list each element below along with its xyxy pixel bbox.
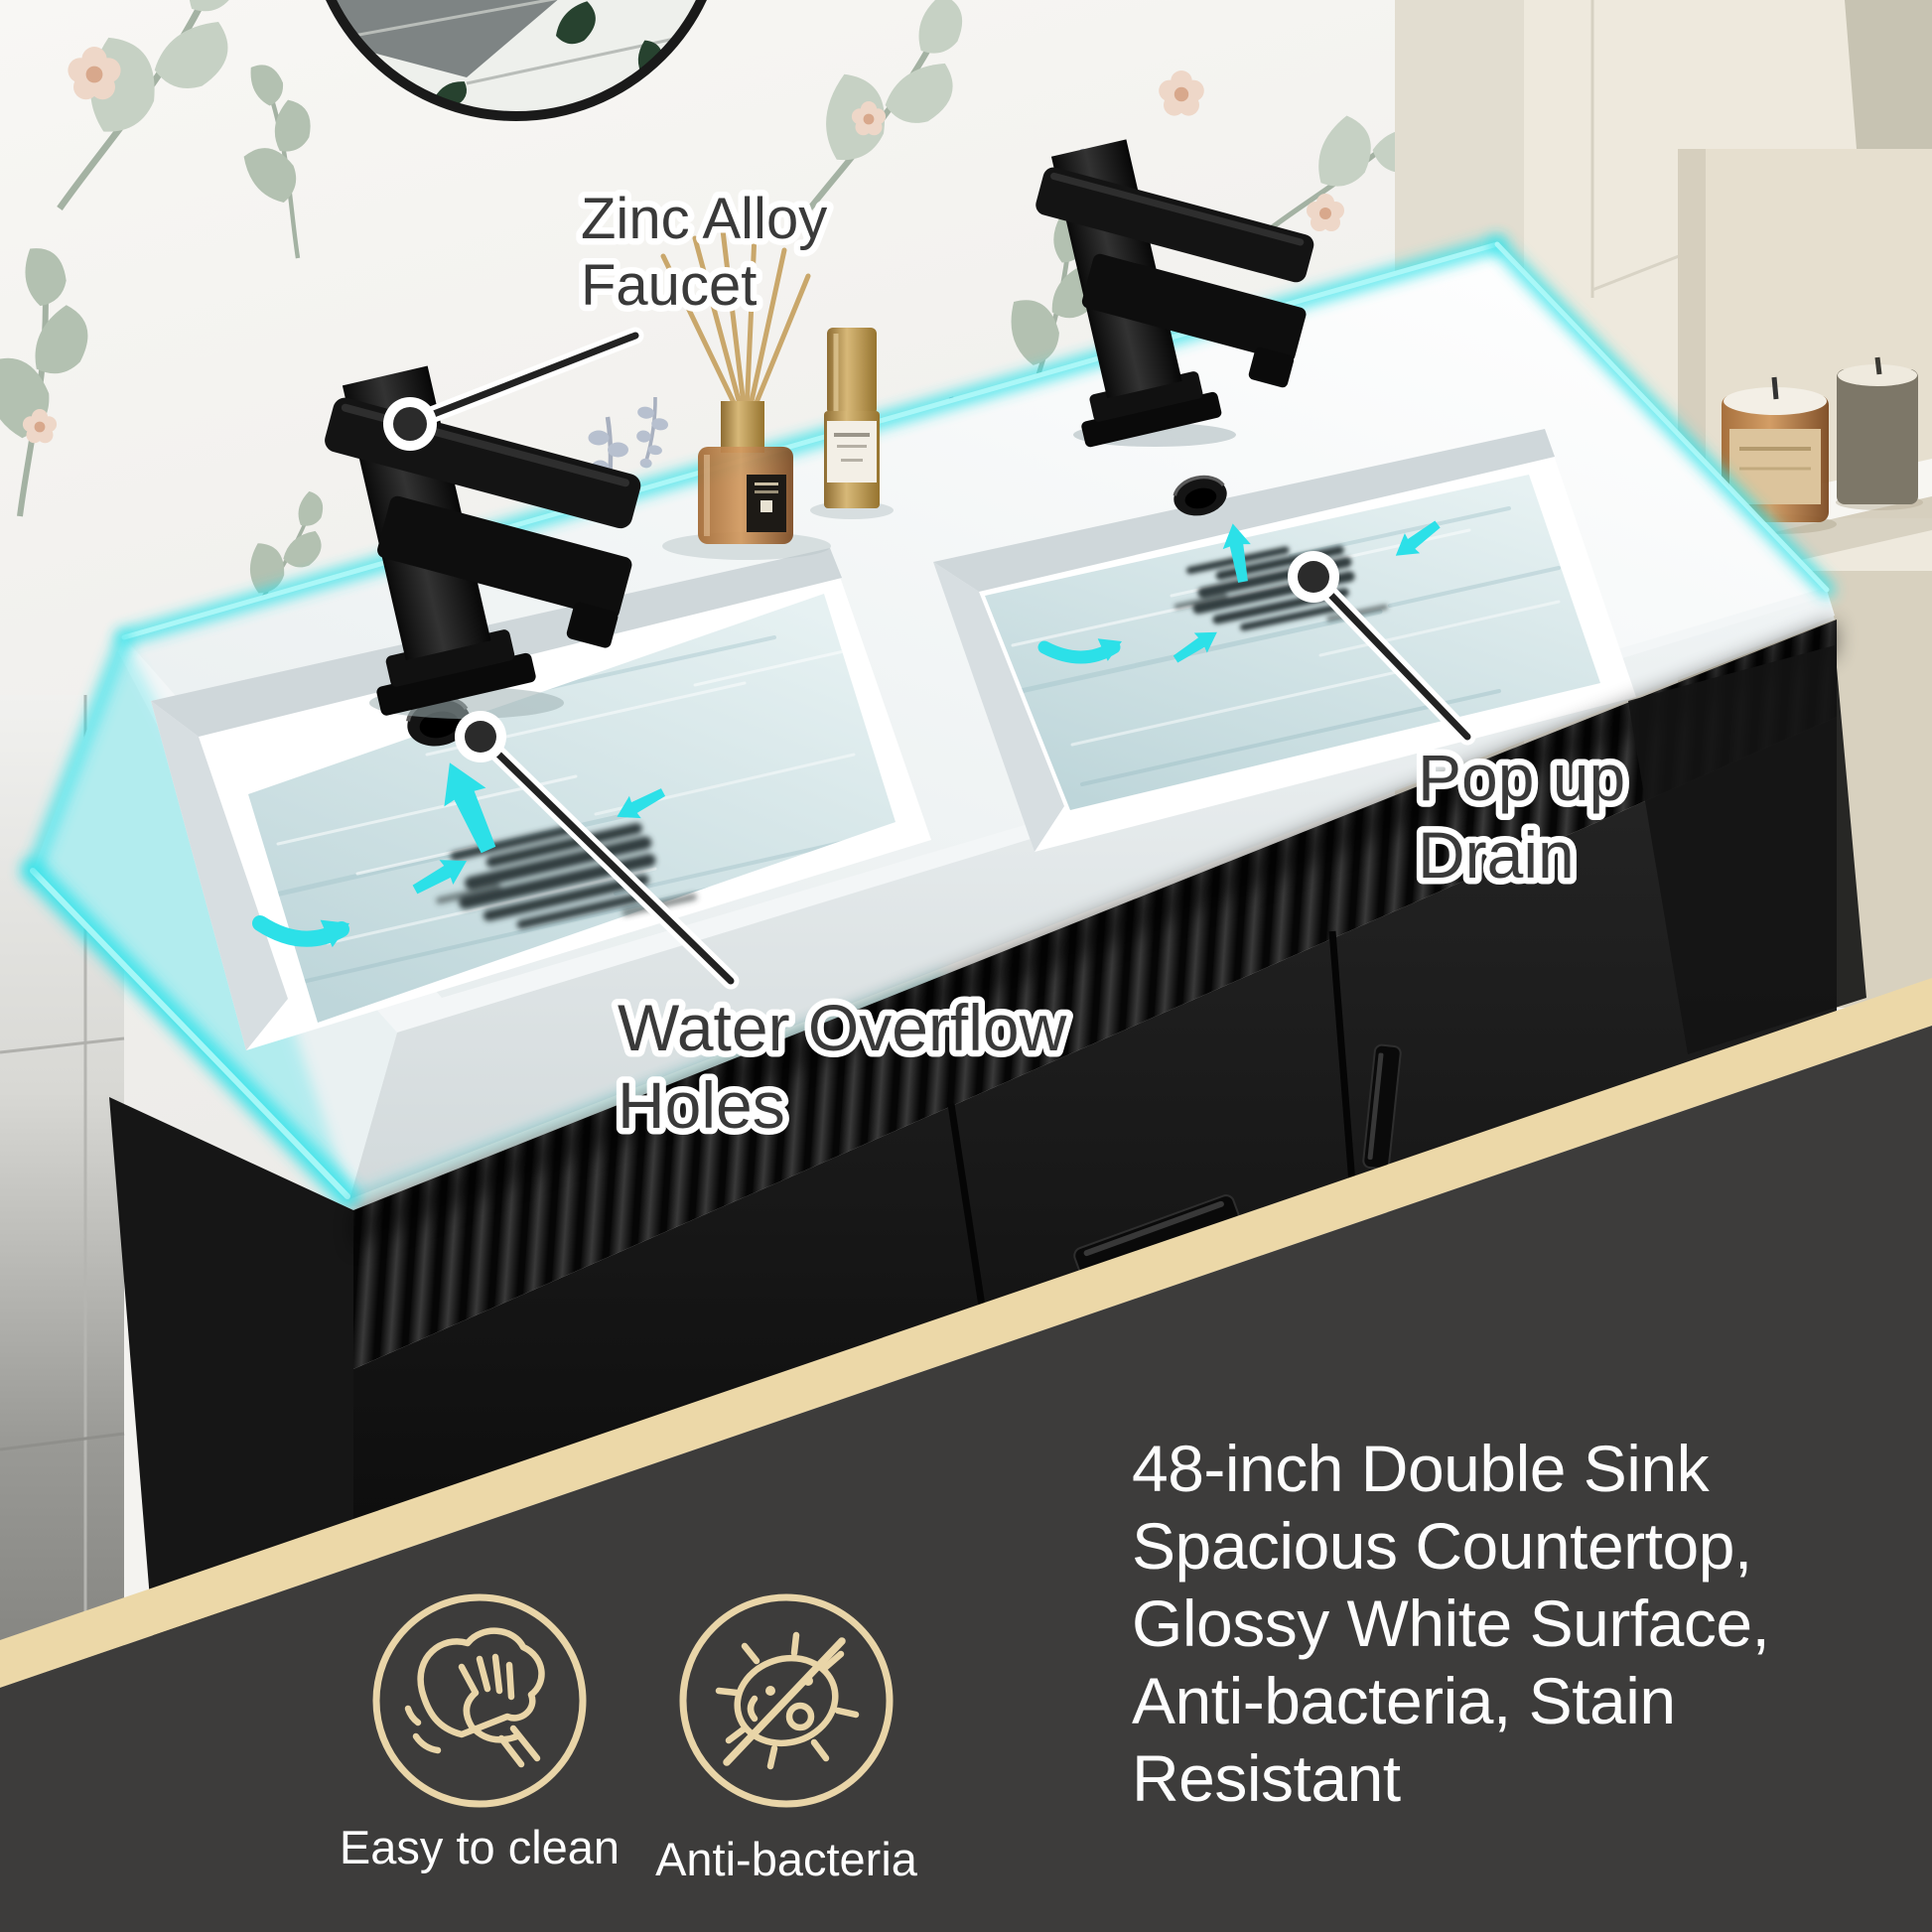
feature-line-2: Spacious Countertop, (1132, 1509, 1752, 1583)
feature-line-1: 48-inch Double Sink (1132, 1432, 1711, 1505)
feature-line-3: Glossy White Surface, (1132, 1587, 1769, 1660)
badge-anti-bacteria-label: Anti-bacteria (655, 1833, 918, 1885)
badge-easy-to-clean-label: Easy to clean (340, 1821, 620, 1873)
drain-label-line2: Drain (1418, 818, 1575, 892)
overflow-callout-dot (455, 711, 506, 762)
faucet-label-line2: Faucet (581, 253, 757, 318)
scene: Zinc Alloy Zinc Alloy Faucet Faucet Wate… (0, 0, 1932, 1932)
overflow-label-line1: Water Overflow (618, 991, 1067, 1064)
candle-dark (1837, 357, 1918, 504)
feature-line-4: Anti-bacteria, Stain (1132, 1664, 1676, 1737)
faucet-label-line1: Zinc Alloy (581, 187, 827, 251)
drain-label-line1: Pop up (1418, 741, 1625, 814)
feature-line-5: Resistant (1132, 1741, 1401, 1815)
overflow-label-line2: Holes (618, 1068, 785, 1142)
gold-pump-bottle (824, 328, 880, 508)
drain-callout-dot (1288, 551, 1339, 603)
faucet-callout-dot (383, 397, 437, 451)
bottle-label (827, 421, 877, 483)
product-infographic-image: Zinc Alloy Zinc Alloy Faucet Faucet Wate… (0, 0, 1932, 1932)
